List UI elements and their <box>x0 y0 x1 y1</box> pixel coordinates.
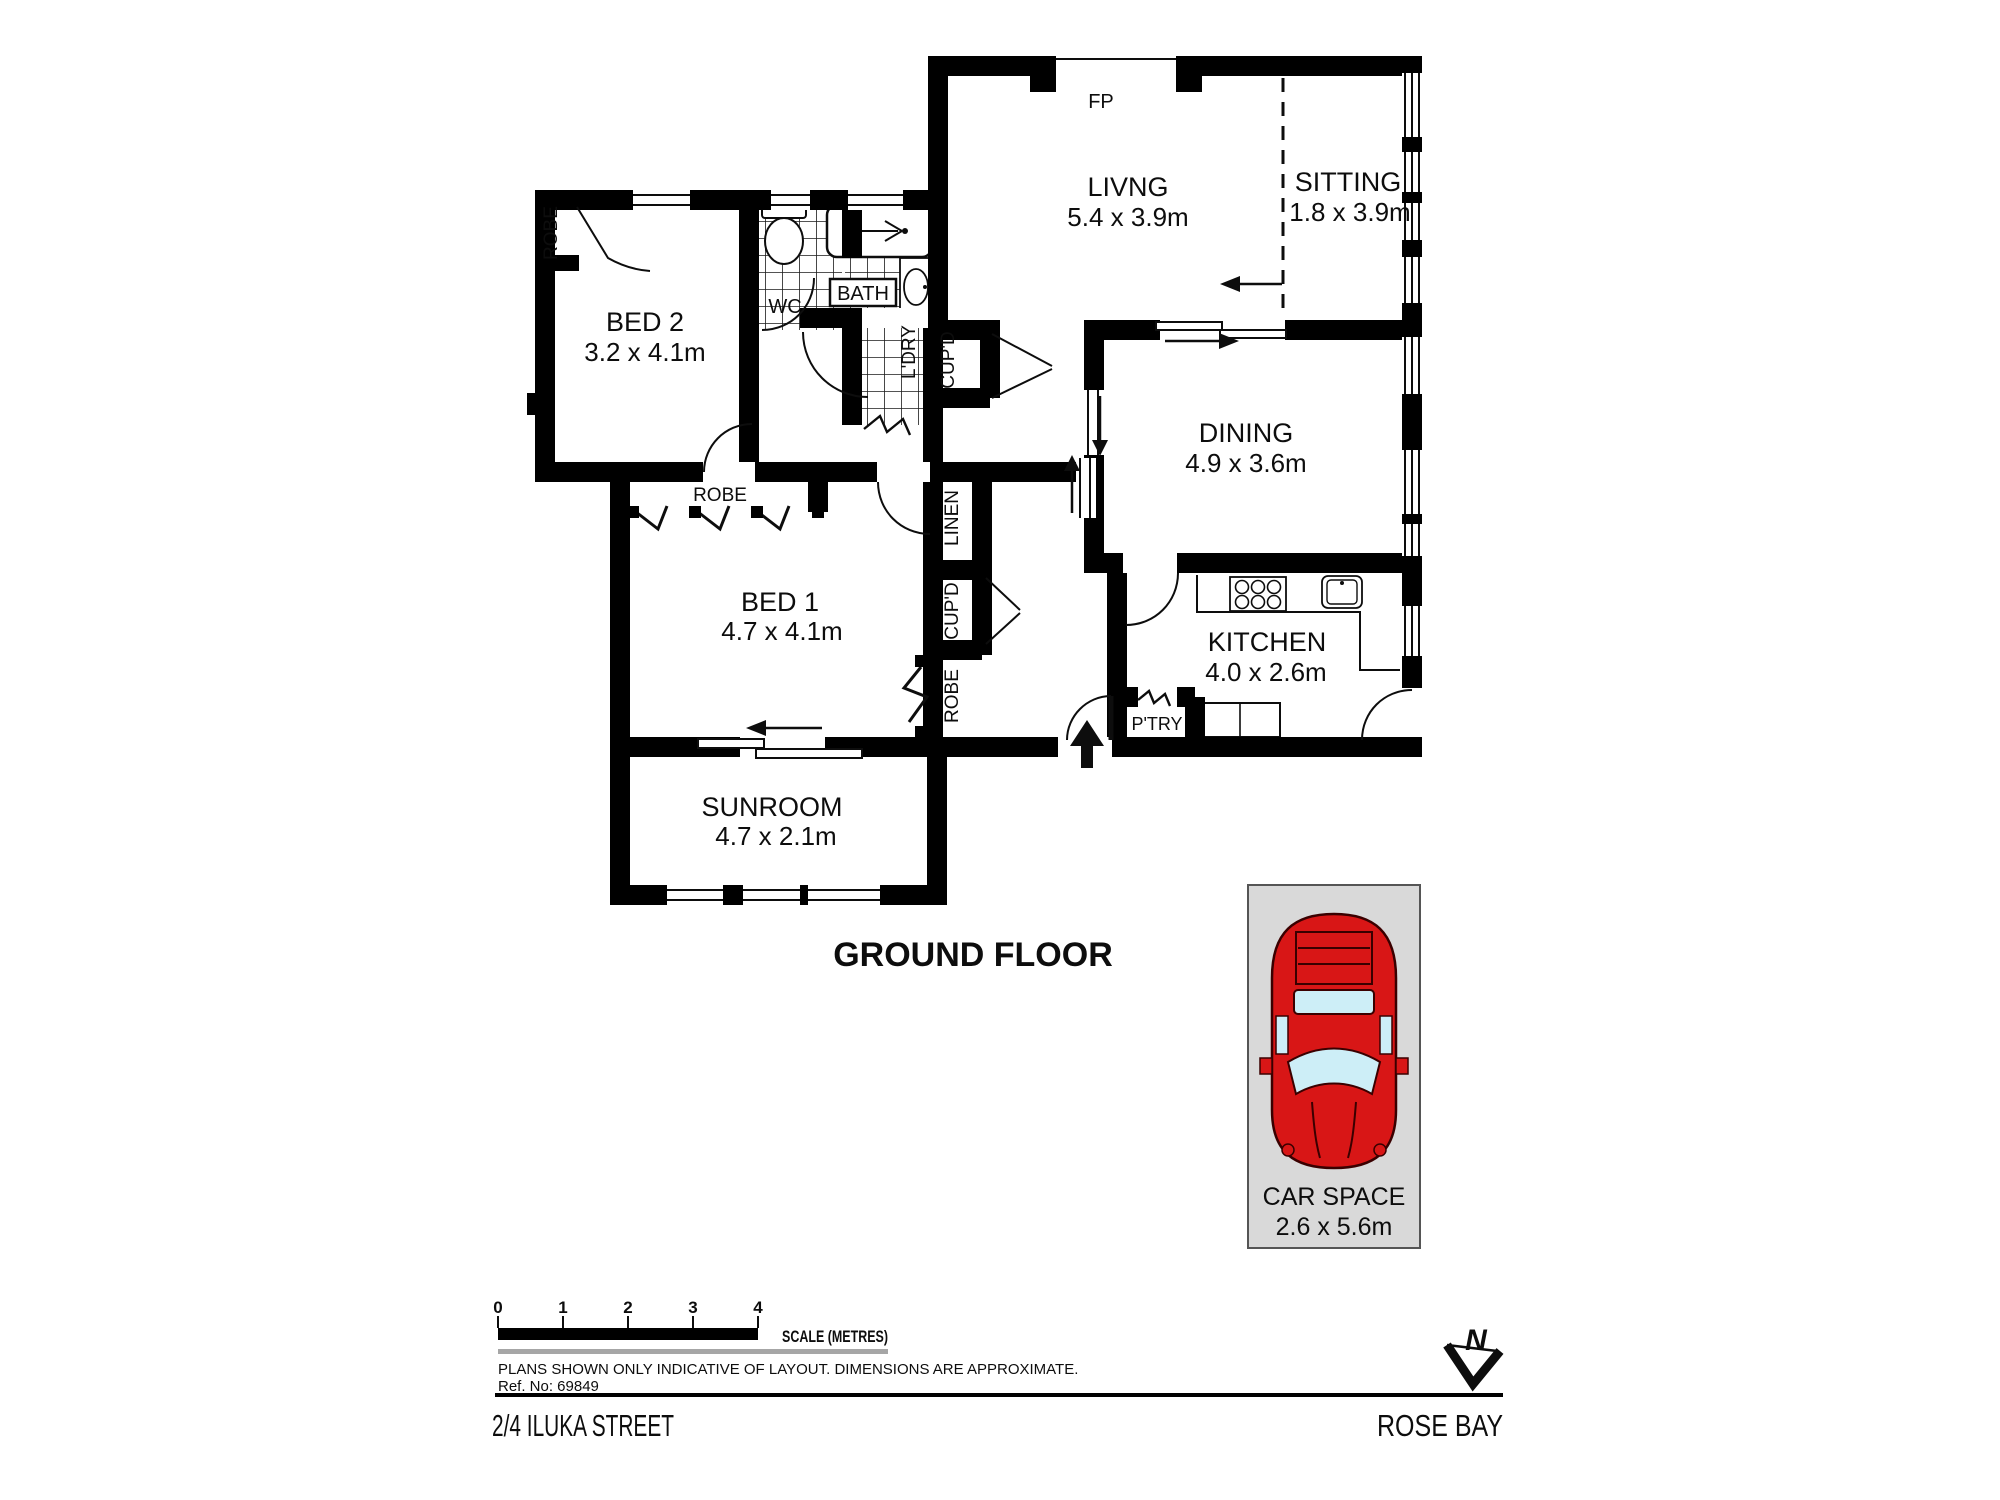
burner <box>1252 596 1265 609</box>
cupboard-label: CUP'D <box>938 331 959 388</box>
pivot <box>689 506 701 518</box>
slider-arrow-head-left <box>1220 276 1240 292</box>
footer: 2/4 ILUKA STREET ROSE BAY <box>492 1393 1503 1443</box>
scale-tick-2: 2 <box>623 1298 632 1317</box>
pantry-door-zigzag <box>1138 691 1170 706</box>
pivot <box>751 506 763 518</box>
laundry-opening-gap <box>862 308 928 328</box>
shower-head-dot <box>902 228 908 234</box>
scale-bar: 0 1 2 3 4 SCALE (METRES) PLANS SHOWN ONL… <box>493 1298 1078 1395</box>
footer-suburb: ROSE BAY <box>1377 1408 1503 1443</box>
bench <box>1202 703 1280 737</box>
scale-tick-0: 0 <box>493 1298 502 1317</box>
car-space: CAR SPACE 2.6 x 5.6m <box>1248 885 1420 1248</box>
car-rear-window <box>1294 990 1374 1014</box>
car-mirror <box>1396 1058 1408 1074</box>
linen-label: LINEN <box>942 490 963 546</box>
floor-title: GROUND FLOOR <box>833 936 1113 974</box>
toilet-bowl <box>765 218 803 264</box>
scale-tick-1: 1 <box>558 1298 567 1317</box>
fireplace-tab <box>1030 76 1056 92</box>
dining-label: DINING <box>1199 418 1294 448</box>
pivot <box>915 726 927 738</box>
bath-label: BATH <box>837 283 889 305</box>
bed1-door-gap <box>877 462 930 482</box>
robe2-door-line <box>577 207 650 271</box>
burner <box>1236 596 1249 609</box>
car-headlight <box>1374 1144 1386 1156</box>
car-space-label: CAR SPACE <box>1263 1183 1406 1211</box>
floorplan-page: LIVNG 5.4 x 3.9m SITTING 1.8 x 3.9m DINI… <box>0 0 2000 1500</box>
pivot <box>812 506 824 518</box>
living-dims: 5.4 x 3.9m <box>1067 202 1188 232</box>
sunroom-label: SUNROOM <box>702 792 843 822</box>
bed1-label: BED 1 <box>741 587 819 617</box>
kitchen-dims: 4.0 x 2.6m <box>1205 657 1326 687</box>
walls <box>535 56 1422 905</box>
car-headlight <box>1282 1144 1294 1156</box>
kitchen-door-arc <box>1126 573 1178 625</box>
sunroom-dims: 4.7 x 2.1m <box>715 821 836 851</box>
north-compass: N <box>1447 1324 1500 1384</box>
car-body <box>1272 914 1396 1168</box>
window-gap <box>848 190 903 210</box>
disclaimer-text: PLANS SHOWN ONLY INDICATIVE OF LAYOUT. D… <box>498 1361 1078 1378</box>
window-gap <box>808 885 880 905</box>
arrows <box>746 276 1282 768</box>
bed2-robe-label: ROBE <box>541 206 562 260</box>
car-side-window <box>1380 1016 1392 1054</box>
scale-tick-3: 3 <box>688 1298 697 1317</box>
burner <box>1268 581 1281 594</box>
dining-dims: 4.9 x 3.6m <box>1185 448 1306 478</box>
sitting-dims: 1.8 x 3.9m <box>1289 197 1410 227</box>
fireplace-label: FP <box>1088 91 1114 113</box>
scale-tick-4: 4 <box>753 1298 763 1317</box>
kitchen-door-gap <box>1123 553 1177 573</box>
slider-panel <box>698 739 764 748</box>
ref-number: Ref. No: 69849 <box>498 1378 599 1395</box>
bed1-door-arc <box>878 482 930 534</box>
scale-tick-lines <box>498 1316 758 1328</box>
window-gap <box>667 885 723 905</box>
fireplace-tab <box>1176 76 1202 92</box>
car-icon <box>1260 914 1408 1168</box>
pivot <box>627 506 639 518</box>
kitchen-ext-door-gap <box>1402 688 1422 737</box>
sitting-label: SITTING <box>1295 167 1402 197</box>
burner <box>1268 596 1281 609</box>
basin-tap-dot <box>923 285 927 289</box>
window-gap <box>633 190 690 210</box>
car-mirror <box>1260 1058 1272 1074</box>
bed1-robe-label: ROBE <box>693 485 747 506</box>
car-space-dims: 2.6 x 5.6m <box>1276 1213 1393 1241</box>
living-label: LIVNG <box>1087 172 1168 202</box>
footer-divider <box>495 1393 1503 1397</box>
pantry-label: P'TRY <box>1131 714 1182 734</box>
wc-label: WC <box>768 296 801 318</box>
kitchen-label: KITCHEN <box>1208 627 1327 657</box>
slider-panel <box>1156 322 1222 330</box>
wall-notch <box>527 393 539 415</box>
burner <box>1252 581 1265 594</box>
sink-tap-dot <box>1340 581 1344 585</box>
pivot <box>915 655 927 667</box>
window-gap <box>743 885 800 905</box>
window-gap <box>771 190 810 210</box>
cupboard-door-lines <box>992 334 1052 398</box>
scale-grey-rule <box>498 1349 888 1354</box>
bed2-dims: 3.2 x 4.1m <box>584 337 705 367</box>
bed2-door-gap <box>703 462 755 482</box>
slider-arrow-head-left <box>746 720 766 736</box>
car-side-window <box>1276 1016 1288 1054</box>
entry-arrow-icon <box>1070 720 1104 768</box>
scale-caption: SCALE (METRES) <box>782 1327 888 1346</box>
robe1-bifold <box>636 506 789 529</box>
bed2-label: BED 2 <box>606 307 684 337</box>
slider-panel <box>756 749 862 758</box>
scale-bar-fill <box>498 1328 758 1340</box>
bed1-dims: 4.7 x 4.1m <box>721 616 842 646</box>
burner <box>1236 581 1249 594</box>
hall-robe-label: ROBE <box>942 669 963 723</box>
footer-address: 2/4 ILUKA STREET <box>492 1408 674 1443</box>
floorplan-canvas: LIVNG 5.4 x 3.9m SITTING 1.8 x 3.9m DINI… <box>0 0 2000 1500</box>
hall-cupboard-label: CUP'D <box>942 582 963 639</box>
north-letter: N <box>1465 1324 1488 1357</box>
laundry-label: L'DRY <box>899 325 920 379</box>
slider-panel <box>1220 330 1286 338</box>
